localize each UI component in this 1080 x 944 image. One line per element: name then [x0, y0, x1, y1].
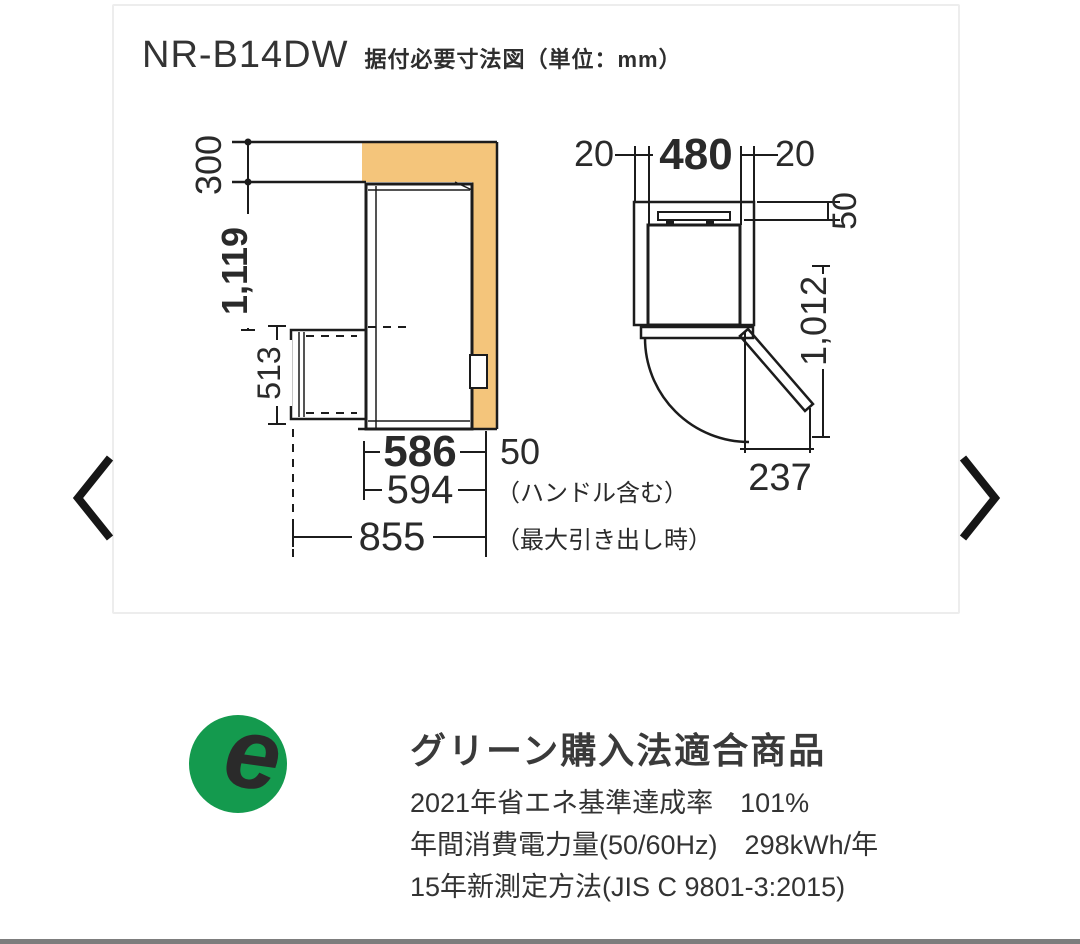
dim-drawer-height: 513 — [251, 346, 287, 399]
dim-right-gap: 20 — [775, 133, 815, 174]
door-swing-arc — [645, 338, 749, 442]
note-handle: （ハンドル含む） — [496, 480, 688, 507]
drawer-dashed-lines — [306, 327, 412, 413]
door-closed — [641, 327, 753, 338]
next-image-button[interactable] — [953, 448, 1005, 548]
handle-notch — [470, 355, 487, 388]
energy-spec-lines: 2021年省エネ基準達成率 101% 年間消費電力量(50/60Hz) 298k… — [410, 782, 878, 908]
eco-mark-logo: e — [188, 712, 290, 821]
dim-height: 1,119 — [214, 227, 255, 315]
fridge-top-body — [648, 225, 740, 325]
bottom-divider-bar — [0, 939, 1080, 944]
chevron-right-icon — [953, 448, 1005, 548]
dim-max-pullout: 855 — [359, 515, 426, 559]
drawer-pulled-out — [291, 330, 366, 419]
dim-right-clearance: 50 — [500, 431, 540, 472]
dim-width-with-handle: 594 — [387, 468, 454, 512]
dim-left-gap: 20 — [574, 133, 614, 174]
dim-rear-gap: 50 — [826, 192, 864, 230]
note-pullout: （最大引き出し時） — [496, 527, 712, 554]
spacer-foot — [666, 220, 674, 225]
top-view: 20 480 20 50 1,012 237 — [574, 130, 864, 499]
dim-door-open-width: 237 — [748, 457, 811, 499]
fridge-front-details — [368, 186, 470, 429]
fridge-front-body — [366, 184, 472, 429]
drawer-wall-lines — [299, 332, 304, 417]
green-e-icon: e — [188, 712, 290, 816]
front-top-clearance-shade — [362, 142, 497, 182]
spec-line-standard: 2021年省エネ基準達成率 101% — [410, 782, 878, 824]
front-right-clearance-shade — [472, 182, 497, 429]
rear-spacer — [658, 212, 730, 220]
chevron-left-icon — [68, 448, 120, 548]
eco-letter: e — [218, 712, 289, 813]
spacer-foot — [706, 220, 714, 225]
spec-line-method: 15年新測定方法(JIS C 9801-3:2015) — [410, 866, 878, 908]
front-view: 300 1,119 513 586 50 594 （ハンドル含む） 855 （最… — [188, 135, 712, 560]
dim-top-clearance: 300 — [188, 135, 229, 195]
prev-image-button[interactable] — [68, 448, 120, 548]
dim-top-width: 480 — [659, 130, 732, 179]
dim-depth-door-open: 1,012 — [793, 276, 834, 366]
green-law-heading: グリーン購入法適合商品 — [410, 722, 826, 774]
spec-line-consumption: 年間消費電力量(50/60Hz) 298kWh/年 — [410, 824, 878, 866]
